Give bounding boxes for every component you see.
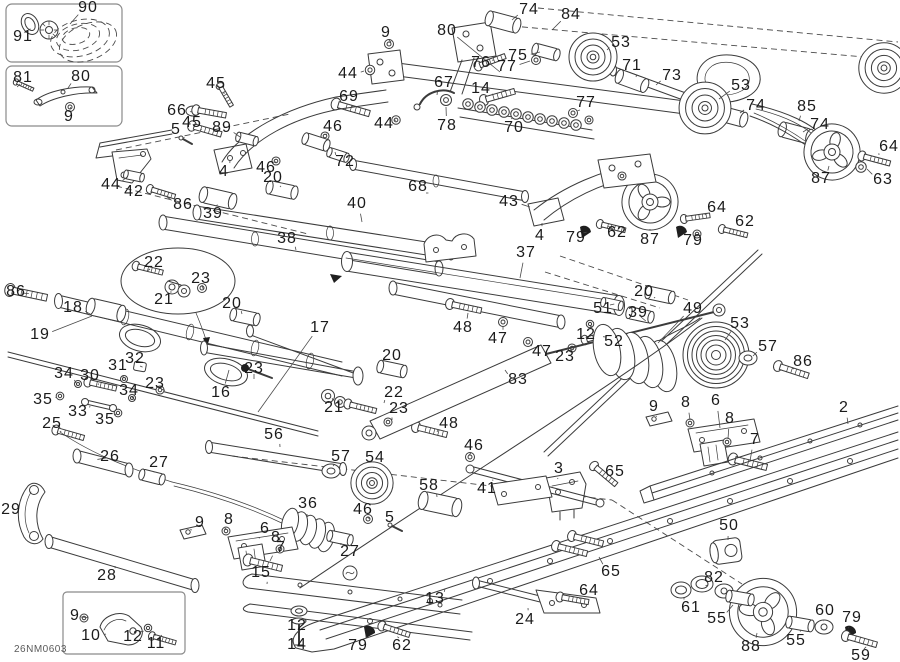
part-label-39: 39 [203, 206, 223, 222]
part-label-60: 60 [815, 603, 835, 619]
washer-47 [499, 318, 508, 327]
part-label-23: 23 [555, 349, 575, 365]
part-label-12: 12 [287, 618, 307, 634]
part-label-62: 62 [607, 225, 627, 241]
part-label-73: 73 [662, 68, 682, 84]
part-label-23: 23 [145, 376, 165, 392]
part-label-47: 47 [532, 344, 552, 360]
part-label-56: 56 [264, 427, 284, 443]
part-label-9: 9 [64, 109, 74, 125]
bolt-64 [680, 211, 711, 224]
part-label-16: 16 [211, 385, 231, 401]
part-label-74: 74 [519, 2, 539, 18]
part-label-6: 6 [260, 521, 270, 537]
part-label-54: 54 [365, 450, 385, 466]
part-label-45: 45 [182, 115, 202, 131]
diagram-code: 26NM0603 [14, 644, 67, 655]
part-label-58: 58 [419, 478, 439, 494]
rail-rear-hardware [322, 453, 878, 651]
part-label-7: 7 [276, 540, 286, 556]
part-label-9: 9 [70, 608, 80, 624]
bolt-86 [145, 184, 176, 201]
part-label-83: 83 [508, 372, 528, 388]
part-label-65: 65 [605, 464, 625, 480]
part-label-8: 8 [681, 395, 691, 411]
part-label-5: 5 [171, 122, 181, 138]
part-label-55: 55 [707, 611, 727, 627]
part-label-24: 24 [515, 612, 535, 628]
part-label-61: 61 [681, 600, 701, 616]
bolt-48 [445, 298, 483, 316]
idler-wheel-53 [679, 82, 731, 134]
part-label-64: 64 [579, 583, 599, 599]
part-label-40: 40 [347, 196, 367, 212]
part-label-39: 39 [628, 305, 648, 321]
part-label-38: 38 [277, 231, 297, 247]
part-label-9: 9 [381, 25, 391, 41]
part-label-76: 76 [471, 55, 491, 71]
part-label-20: 20 [634, 284, 654, 300]
part-label-42: 42 [124, 184, 144, 200]
part-label-11: 11 [147, 636, 166, 652]
part-label-70: 70 [504, 120, 524, 136]
part-label-30: 30 [80, 368, 100, 384]
part-label-12: 12 [576, 327, 596, 343]
part-label-74: 74 [810, 117, 830, 133]
part-label-26: 26 [100, 449, 120, 465]
roller-58 [417, 490, 464, 517]
part-label-18: 18 [63, 300, 83, 316]
idler-wheel-54 [351, 462, 393, 504]
part-label-44: 44 [338, 66, 358, 82]
part-label-49: 49 [683, 301, 703, 317]
part-label-23: 23 [191, 271, 211, 287]
bolt-22 [343, 398, 377, 416]
part-label-86: 86 [793, 354, 813, 370]
part-label-47: 47 [488, 331, 508, 347]
part-label-17: 17 [310, 320, 330, 336]
part-label-77: 77 [497, 59, 517, 75]
part-label-91: 91 [13, 29, 33, 45]
part-label-28: 28 [97, 568, 117, 584]
part-label-44: 44 [374, 116, 394, 132]
idler-wheel-53 [569, 33, 617, 81]
part-label-57: 57 [331, 449, 351, 465]
bolt-7 [727, 452, 768, 473]
part-label-37: 37 [516, 245, 536, 261]
part-label-51: 51 [593, 301, 613, 317]
part-label-52: 52 [604, 334, 624, 350]
part-label-41: 41 [477, 481, 497, 497]
part-label-68: 68 [408, 179, 428, 195]
part-label-48: 48 [453, 320, 473, 336]
part-label-79: 79 [842, 610, 862, 626]
bolt-65 [566, 530, 604, 549]
part-label-34: 34 [119, 383, 139, 399]
part-label-82: 82 [704, 570, 724, 586]
part-label-12: 12 [123, 629, 143, 645]
part-label-46: 46 [323, 119, 343, 135]
part-label-90: 90 [78, 0, 98, 16]
part-label-59: 59 [851, 648, 871, 662]
part-label-27: 27 [340, 544, 360, 560]
washer-78 [441, 95, 452, 106]
detail-bubble [121, 248, 235, 347]
part-label-84: 84 [561, 7, 581, 23]
slide-rail-2 [640, 406, 898, 503]
part-label-31: 31 [108, 358, 128, 374]
parts-diagram: 9091818094566455894464620444286393840687… [0, 0, 900, 662]
part-label-7: 7 [750, 432, 760, 448]
part-label-43: 43 [499, 194, 519, 210]
part-label-29: 29 [1, 502, 21, 518]
part-label-48: 48 [439, 416, 459, 432]
part-label-89: 89 [212, 120, 232, 136]
washer-63 [856, 162, 867, 173]
part-label-65: 65 [601, 564, 621, 580]
part-label-72: 72 [335, 154, 355, 170]
part-label-15: 15 [251, 565, 271, 581]
part-label-62: 62 [735, 214, 755, 230]
part-label-87: 87 [640, 232, 660, 248]
part-label-62: 62 [392, 638, 412, 654]
part-label-67: 67 [434, 75, 454, 91]
part-label-8: 8 [725, 411, 735, 427]
part-label-46: 46 [353, 502, 373, 518]
part-label-71: 71 [622, 58, 642, 74]
part-label-22: 22 [144, 255, 164, 271]
part-label-35: 35 [95, 412, 115, 428]
part-label-35: 35 [33, 392, 53, 408]
part-label-19: 19 [30, 327, 50, 343]
part-label-25: 25 [42, 416, 62, 432]
part-label-22: 22 [384, 385, 404, 401]
part-label-50: 50 [719, 518, 739, 534]
part-label-63: 63 [873, 172, 893, 188]
part-label-64: 64 [879, 139, 899, 155]
part-label-4: 4 [535, 228, 545, 244]
block-50 [708, 537, 742, 565]
part-label-20: 20 [263, 170, 283, 186]
part-label-78: 78 [437, 118, 457, 134]
part-label-9: 9 [649, 399, 659, 415]
part-label-14: 14 [287, 637, 307, 653]
part-label-80: 80 [437, 23, 457, 39]
part-label-77: 77 [576, 95, 596, 111]
part-label-33: 33 [68, 404, 88, 420]
part-label-34: 34 [54, 366, 74, 382]
part-label-79: 79 [683, 233, 703, 249]
part-label-80: 80 [71, 69, 91, 85]
torsion-spring-49 [300, 318, 702, 588]
part-label-21: 21 [154, 292, 174, 308]
part-label-69: 69 [339, 89, 359, 105]
part-label-79: 79 [348, 638, 368, 654]
spacer-19 [85, 297, 128, 322]
part-label-45: 45 [206, 76, 226, 92]
part-label-53: 53 [731, 78, 751, 94]
part-label-36: 36 [298, 496, 318, 512]
part-label-87: 87 [811, 171, 831, 187]
part-label-46: 46 [464, 438, 484, 454]
part-label-44: 44 [101, 177, 121, 193]
part-label-27: 27 [149, 455, 169, 471]
part-label-23: 23 [244, 361, 264, 377]
part-label-20: 20 [222, 296, 242, 312]
part-label-14: 14 [471, 81, 491, 97]
part-label-4: 4 [219, 164, 229, 180]
part-label-86: 86 [6, 284, 26, 300]
part-label-20: 20 [382, 348, 402, 364]
part-label-8: 8 [224, 512, 234, 528]
part-label-32: 32 [125, 351, 145, 367]
part-label-9: 9 [195, 515, 205, 531]
part-label-23: 23 [389, 401, 409, 417]
part-label-74: 74 [746, 98, 766, 114]
part-label-57: 57 [758, 339, 778, 355]
idler-wheel [859, 43, 900, 93]
part-label-79: 79 [566, 230, 586, 246]
part-label-10: 10 [81, 628, 101, 644]
part-label-88: 88 [741, 639, 761, 655]
part-label-13: 13 [425, 591, 445, 607]
part-label-86: 86 [173, 197, 193, 213]
bolt-65 [550, 540, 588, 559]
part-label-5: 5 [385, 510, 395, 526]
part-label-21: 21 [324, 400, 344, 416]
part-label-2: 2 [839, 400, 849, 416]
part-label-55: 55 [786, 633, 806, 649]
part-label-85: 85 [797, 99, 817, 115]
part-label-53: 53 [611, 35, 631, 51]
part-label-3: 3 [554, 461, 564, 477]
part-label-6: 6 [711, 393, 721, 409]
part-label-64: 64 [707, 200, 727, 216]
part-label-53: 53 [730, 316, 750, 332]
part-label-81: 81 [13, 70, 33, 86]
